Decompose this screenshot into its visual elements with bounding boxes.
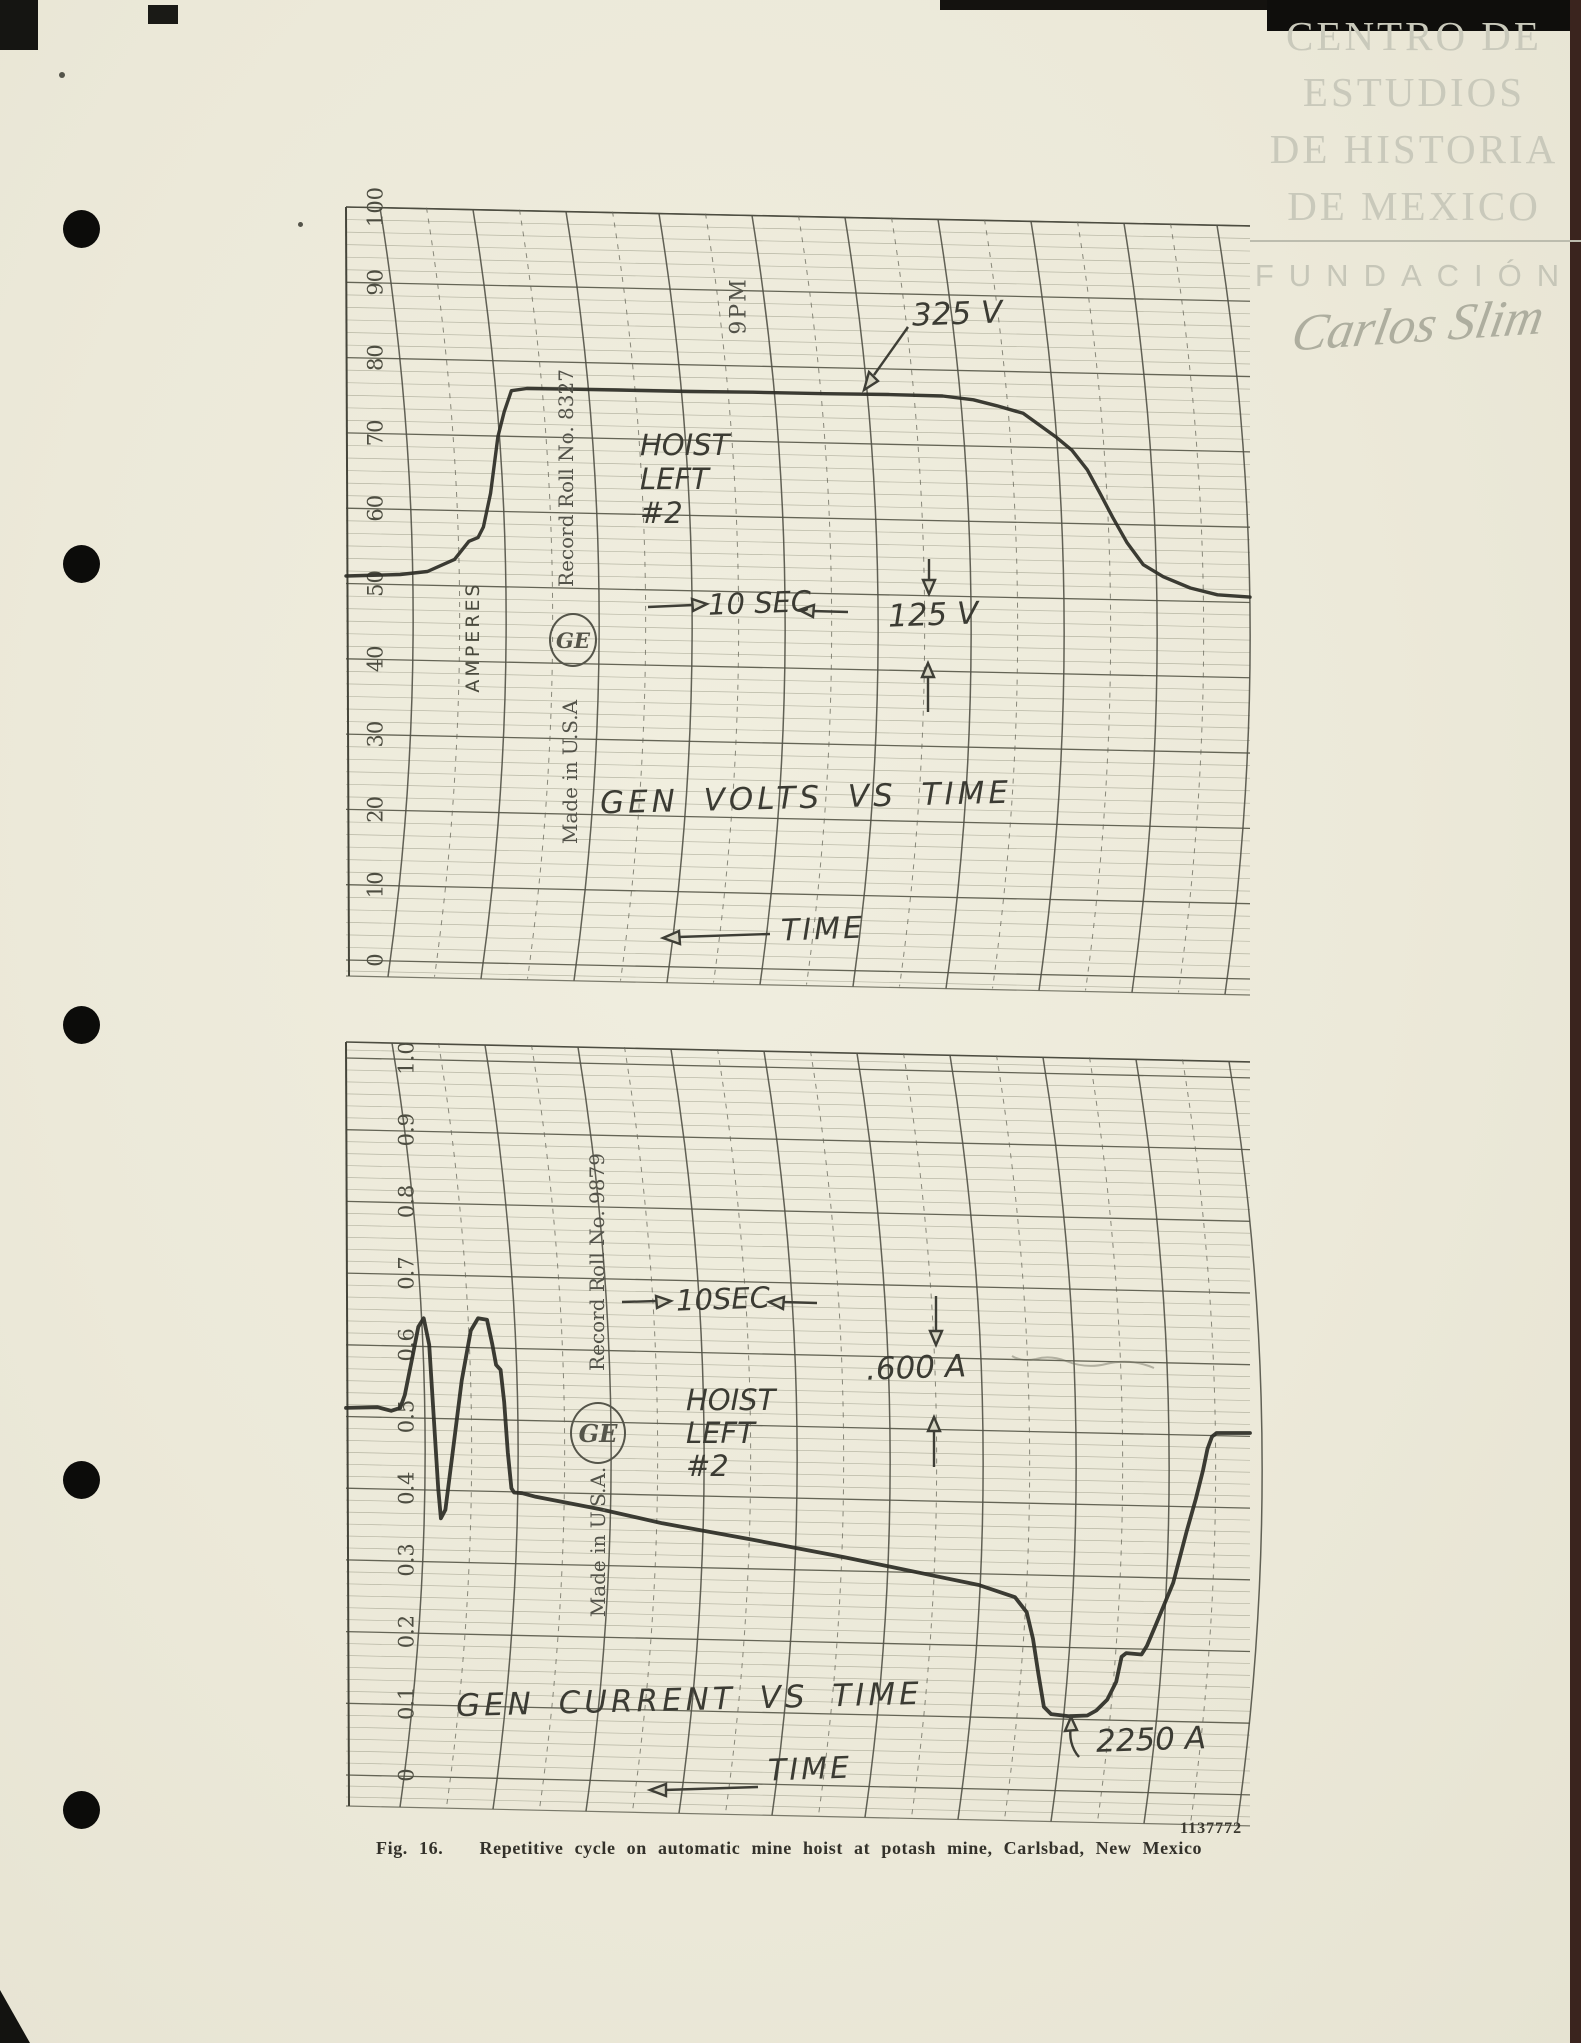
voltage-span-annotation: 125 V xyxy=(887,595,978,634)
svg-text:0.4: 0.4 xyxy=(395,1471,419,1504)
svg-text:30: 30 xyxy=(364,721,388,748)
current-span-annotation: .600 A xyxy=(865,1348,966,1387)
hoist-annotation-line: HOIST xyxy=(640,428,729,462)
svg-text:20: 20 xyxy=(364,796,388,823)
hoist-annotation-line: #2 xyxy=(686,1450,775,1483)
arrow-600a-up xyxy=(928,1417,940,1467)
interval-annotation: 10 SEC xyxy=(707,584,811,622)
arrow-325v xyxy=(864,327,908,390)
svg-text:0.5: 0.5 xyxy=(395,1400,419,1433)
interval-annotation: 10SEC xyxy=(675,1280,770,1317)
hoist-annotation-line: #2 xyxy=(640,496,729,530)
svg-text:90: 90 xyxy=(364,269,388,296)
hoist-annotation-line: LEFT xyxy=(640,462,729,496)
time-of-day-mark: 9PM xyxy=(727,277,752,334)
hoist-annotation-line: HOIST xyxy=(686,1384,775,1417)
figure-caption: Fig. 16. Repetitive cycle on automatic m… xyxy=(376,1838,1202,1859)
record-roll-number: Record Roll No. 9879 xyxy=(585,1153,609,1371)
svg-text:0.8: 0.8 xyxy=(395,1185,419,1218)
peak-voltage-annotation: 325 V xyxy=(911,294,1002,333)
print-number: 1137772 xyxy=(1180,1820,1242,1838)
svg-text:0.7: 0.7 xyxy=(395,1256,419,1289)
time-axis-label: TIME xyxy=(780,911,865,949)
svg-text:0: 0 xyxy=(395,1768,419,1781)
svg-text:0.3: 0.3 xyxy=(395,1543,419,1576)
svg-text:100: 100 xyxy=(364,187,388,227)
arrow-10sec-right xyxy=(622,1296,671,1308)
arrow-2250a xyxy=(1065,1717,1079,1757)
svg-text:0: 0 xyxy=(364,953,388,966)
scanned-document-page: CENTRO DE ESTUDIOS DE HISTORIA DE MEXICO… xyxy=(0,0,1581,2043)
svg-text:1.0: 1.0 xyxy=(395,1041,419,1074)
arrow-10sec-right xyxy=(648,599,707,611)
chart-recorder-strips: 1009080706050403020100 1.00.90.80.70.60.… xyxy=(0,0,1581,2043)
made-in-usa-label: Made in U.S.A. xyxy=(586,1467,610,1618)
made-in-usa-label: Made in U.S.A xyxy=(558,700,582,844)
hoist-annotation-line: LEFT xyxy=(686,1417,775,1450)
svg-text:60: 60 xyxy=(364,495,388,522)
scan-smudge xyxy=(1012,1356,1154,1368)
svg-text:0.9: 0.9 xyxy=(395,1113,419,1146)
arrow-time-top xyxy=(663,931,770,944)
record-roll-number: Record Roll No. 8327 xyxy=(554,369,578,587)
svg-text:0.1: 0.1 xyxy=(395,1687,419,1720)
figure-number: Fig. 16. xyxy=(376,1838,443,1858)
svg-text:70: 70 xyxy=(364,420,388,447)
amperes-scale-label: AMPERES xyxy=(462,581,484,692)
figure-caption-text: Repetitive cycle on automatic mine hoist… xyxy=(480,1838,1203,1858)
svg-text:0.2: 0.2 xyxy=(395,1615,419,1648)
svg-text:40: 40 xyxy=(364,645,388,672)
ge-monogram-icon: GE xyxy=(549,613,597,667)
time-axis-label: TIME xyxy=(767,1751,852,1789)
svg-text:80: 80 xyxy=(364,344,388,371)
svg-text:10: 10 xyxy=(364,871,388,898)
ge-monogram-icon: GE xyxy=(570,1402,626,1464)
dip-current-annotation: 2250 A xyxy=(1095,1720,1206,1760)
